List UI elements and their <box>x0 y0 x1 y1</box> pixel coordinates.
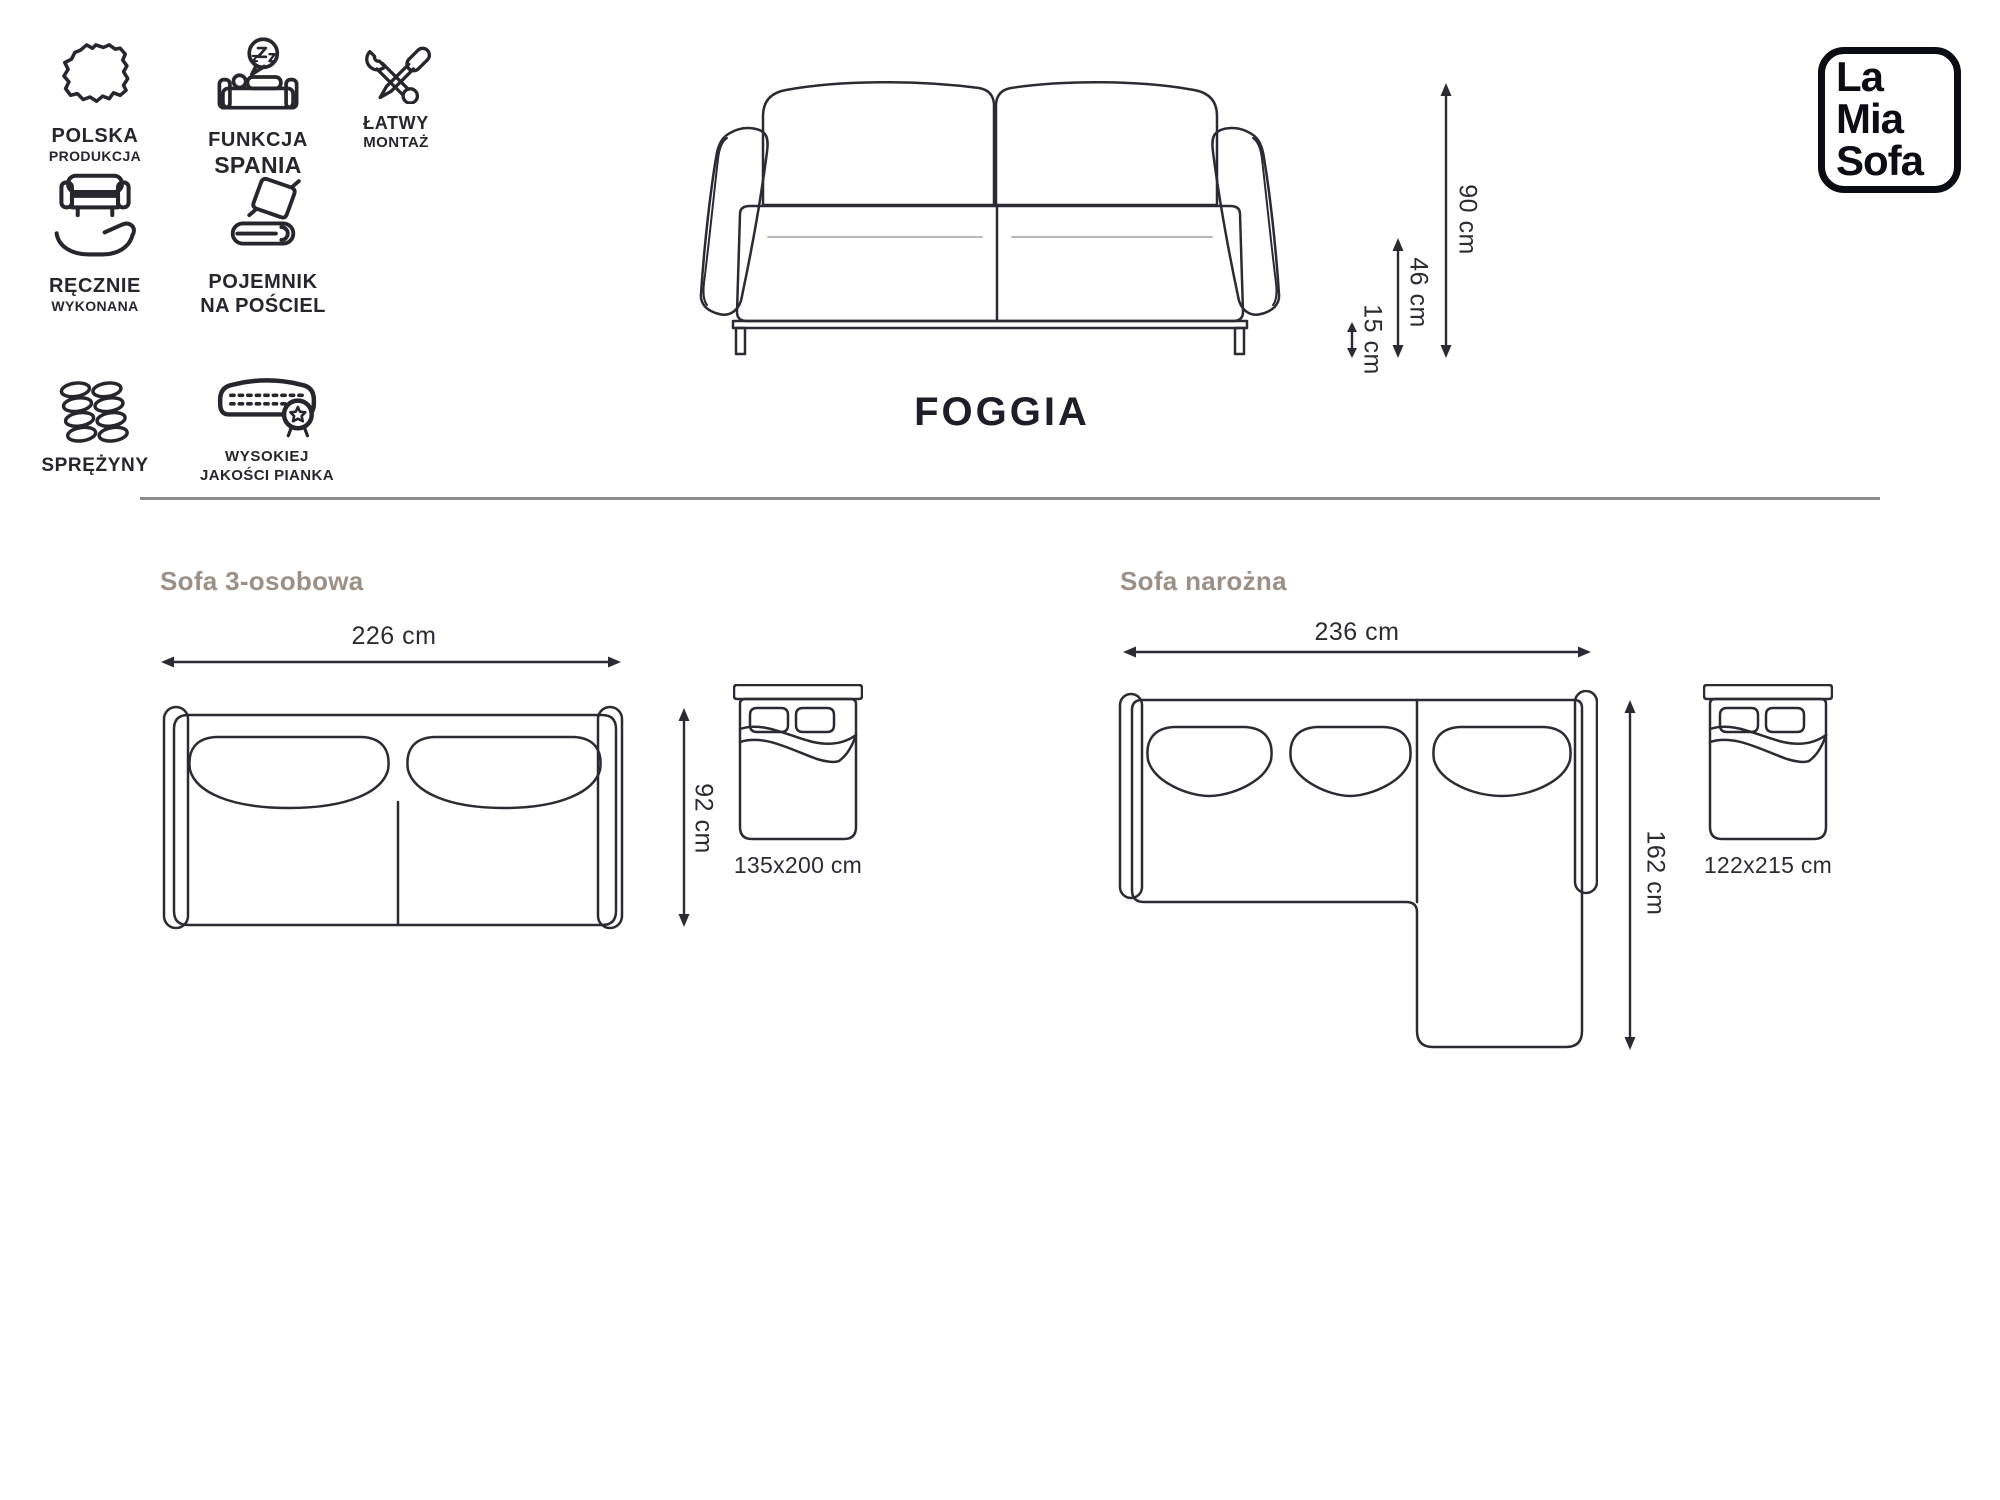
sofa-width-label: 226 cm <box>319 622 469 651</box>
springs-icon <box>59 378 131 446</box>
bed-size-label: 122x215 cm <box>1678 852 1858 879</box>
corner-width-label: 236 cm <box>1282 618 1432 647</box>
feature-wysokiej-jakosci-pianka: WYSOKIEJ JAKOŚCI PIANKA <box>152 374 382 485</box>
poland-map-icon <box>53 36 137 116</box>
feature-label: POJEMNIK <box>208 271 317 293</box>
brand-logo: La Mia Sofa <box>1818 47 1961 193</box>
section-divider <box>140 497 1880 500</box>
feature-sublabel: WYKONANA <box>51 299 138 315</box>
feature-latwy-montaz: ŁATWY MONTAŻ <box>316 42 476 152</box>
feature-label: FUNKCJA <box>208 129 308 151</box>
seat-height-label: 46 cm <box>1404 251 1433 335</box>
handmade-icon <box>47 168 143 266</box>
bed-size-icon <box>1703 684 1833 842</box>
feature-sublabel: MONTAŻ <box>363 135 428 152</box>
feature-polska-produkcja: POLSKA PRODUKCJA <box>5 36 185 165</box>
variant-title-sofa-narozna: Sofa narożna <box>1120 566 1287 597</box>
sleep-function-icon <box>214 34 302 120</box>
spec-sheet: POLSKA PRODUKCJA FUNKCJA SPANIA <box>0 0 2000 1500</box>
total-height-arrow <box>1439 82 1453 359</box>
feature-recznie-wykonana: RĘCZNIE WYKONANA <box>5 168 185 315</box>
feature-label: WYSOKIEJ <box>225 449 309 466</box>
feature-pojemnik-na-posciel: POJEMNIK NA POŚCIEL <box>168 172 358 318</box>
corner-depth-arrow <box>1623 699 1637 1051</box>
corner-depth-label: 162 cm <box>1641 831 1670 915</box>
clearance-height-label: 15 cm <box>1358 298 1387 382</box>
feature-label: RĘCZNIE <box>49 275 141 297</box>
sofa-3-top-drawing <box>158 694 628 934</box>
feature-sublabel: PRODUKCJA <box>49 149 141 165</box>
brand-line: Sofa <box>1836 140 1954 182</box>
sofa-depth-label: 92 cm <box>689 777 718 861</box>
corner-sofa-top-drawing <box>1118 690 1598 1052</box>
brand-line: La <box>1836 56 1954 98</box>
brand-line: Mia <box>1836 98 1954 140</box>
sofa-front-drawing <box>690 60 1290 360</box>
variant-title-sofa-3: Sofa 3-osobowa <box>160 566 364 597</box>
feature-label: ŁATWY <box>363 113 429 133</box>
bed-size-label: 135x200 cm <box>708 852 888 879</box>
bed-size-icon <box>733 684 863 842</box>
corner-width-arrow <box>1122 645 1592 659</box>
sofa-width-arrow <box>160 655 622 669</box>
feature-label: SPRĘŻYNY <box>41 455 148 476</box>
easy-assembly-icon <box>358 42 434 104</box>
feature-sublabel: JAKOŚCI PIANKA <box>200 468 334 485</box>
total-height-label: 90 cm <box>1453 178 1482 262</box>
feature-sublabel: NA POŚCIEL <box>200 295 326 317</box>
product-title: FOGGIA <box>850 390 1154 435</box>
feature-label: POLSKA <box>52 125 139 147</box>
bedding-storage-icon <box>217 172 309 262</box>
foam-quality-icon <box>208 374 326 440</box>
